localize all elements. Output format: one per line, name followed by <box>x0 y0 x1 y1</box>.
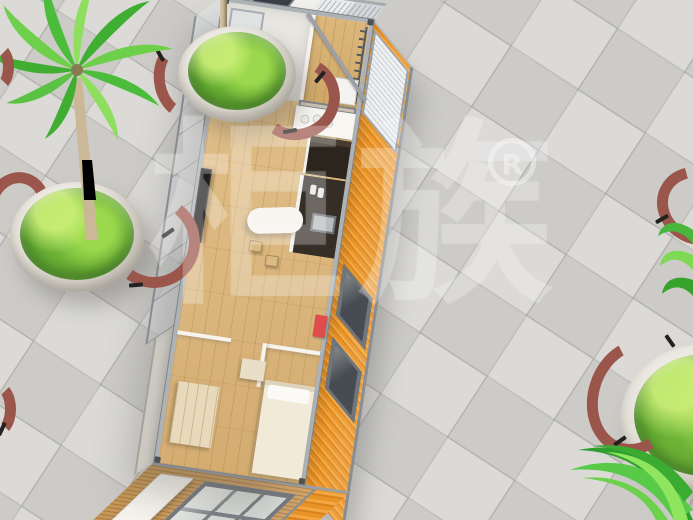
palm-fronds-corner <box>548 392 693 520</box>
red-cabinet <box>312 314 327 338</box>
canister <box>317 187 324 198</box>
side-window-1 <box>336 263 373 350</box>
corner-casting <box>298 478 305 485</box>
bench-armrest <box>129 282 143 287</box>
bar-stool <box>248 240 262 253</box>
palm-fronds-right <box>658 200 693 310</box>
corner-casting <box>154 456 161 463</box>
scene: 柜族 R <box>0 0 693 520</box>
palm-fronds <box>0 0 174 143</box>
kitchen-sink <box>310 213 336 234</box>
curved-bench <box>0 42 14 92</box>
bar-counter <box>247 207 304 234</box>
bar-stool <box>264 254 278 267</box>
side-window-2 <box>325 337 362 424</box>
palm-tree <box>0 0 230 250</box>
bench-armrest <box>664 334 675 348</box>
nightstand <box>239 358 266 381</box>
corner-casting <box>367 19 374 26</box>
bench-sliver-top-left <box>0 42 18 98</box>
canister <box>309 184 316 195</box>
bench-sliver-bottom-left <box>0 378 20 448</box>
